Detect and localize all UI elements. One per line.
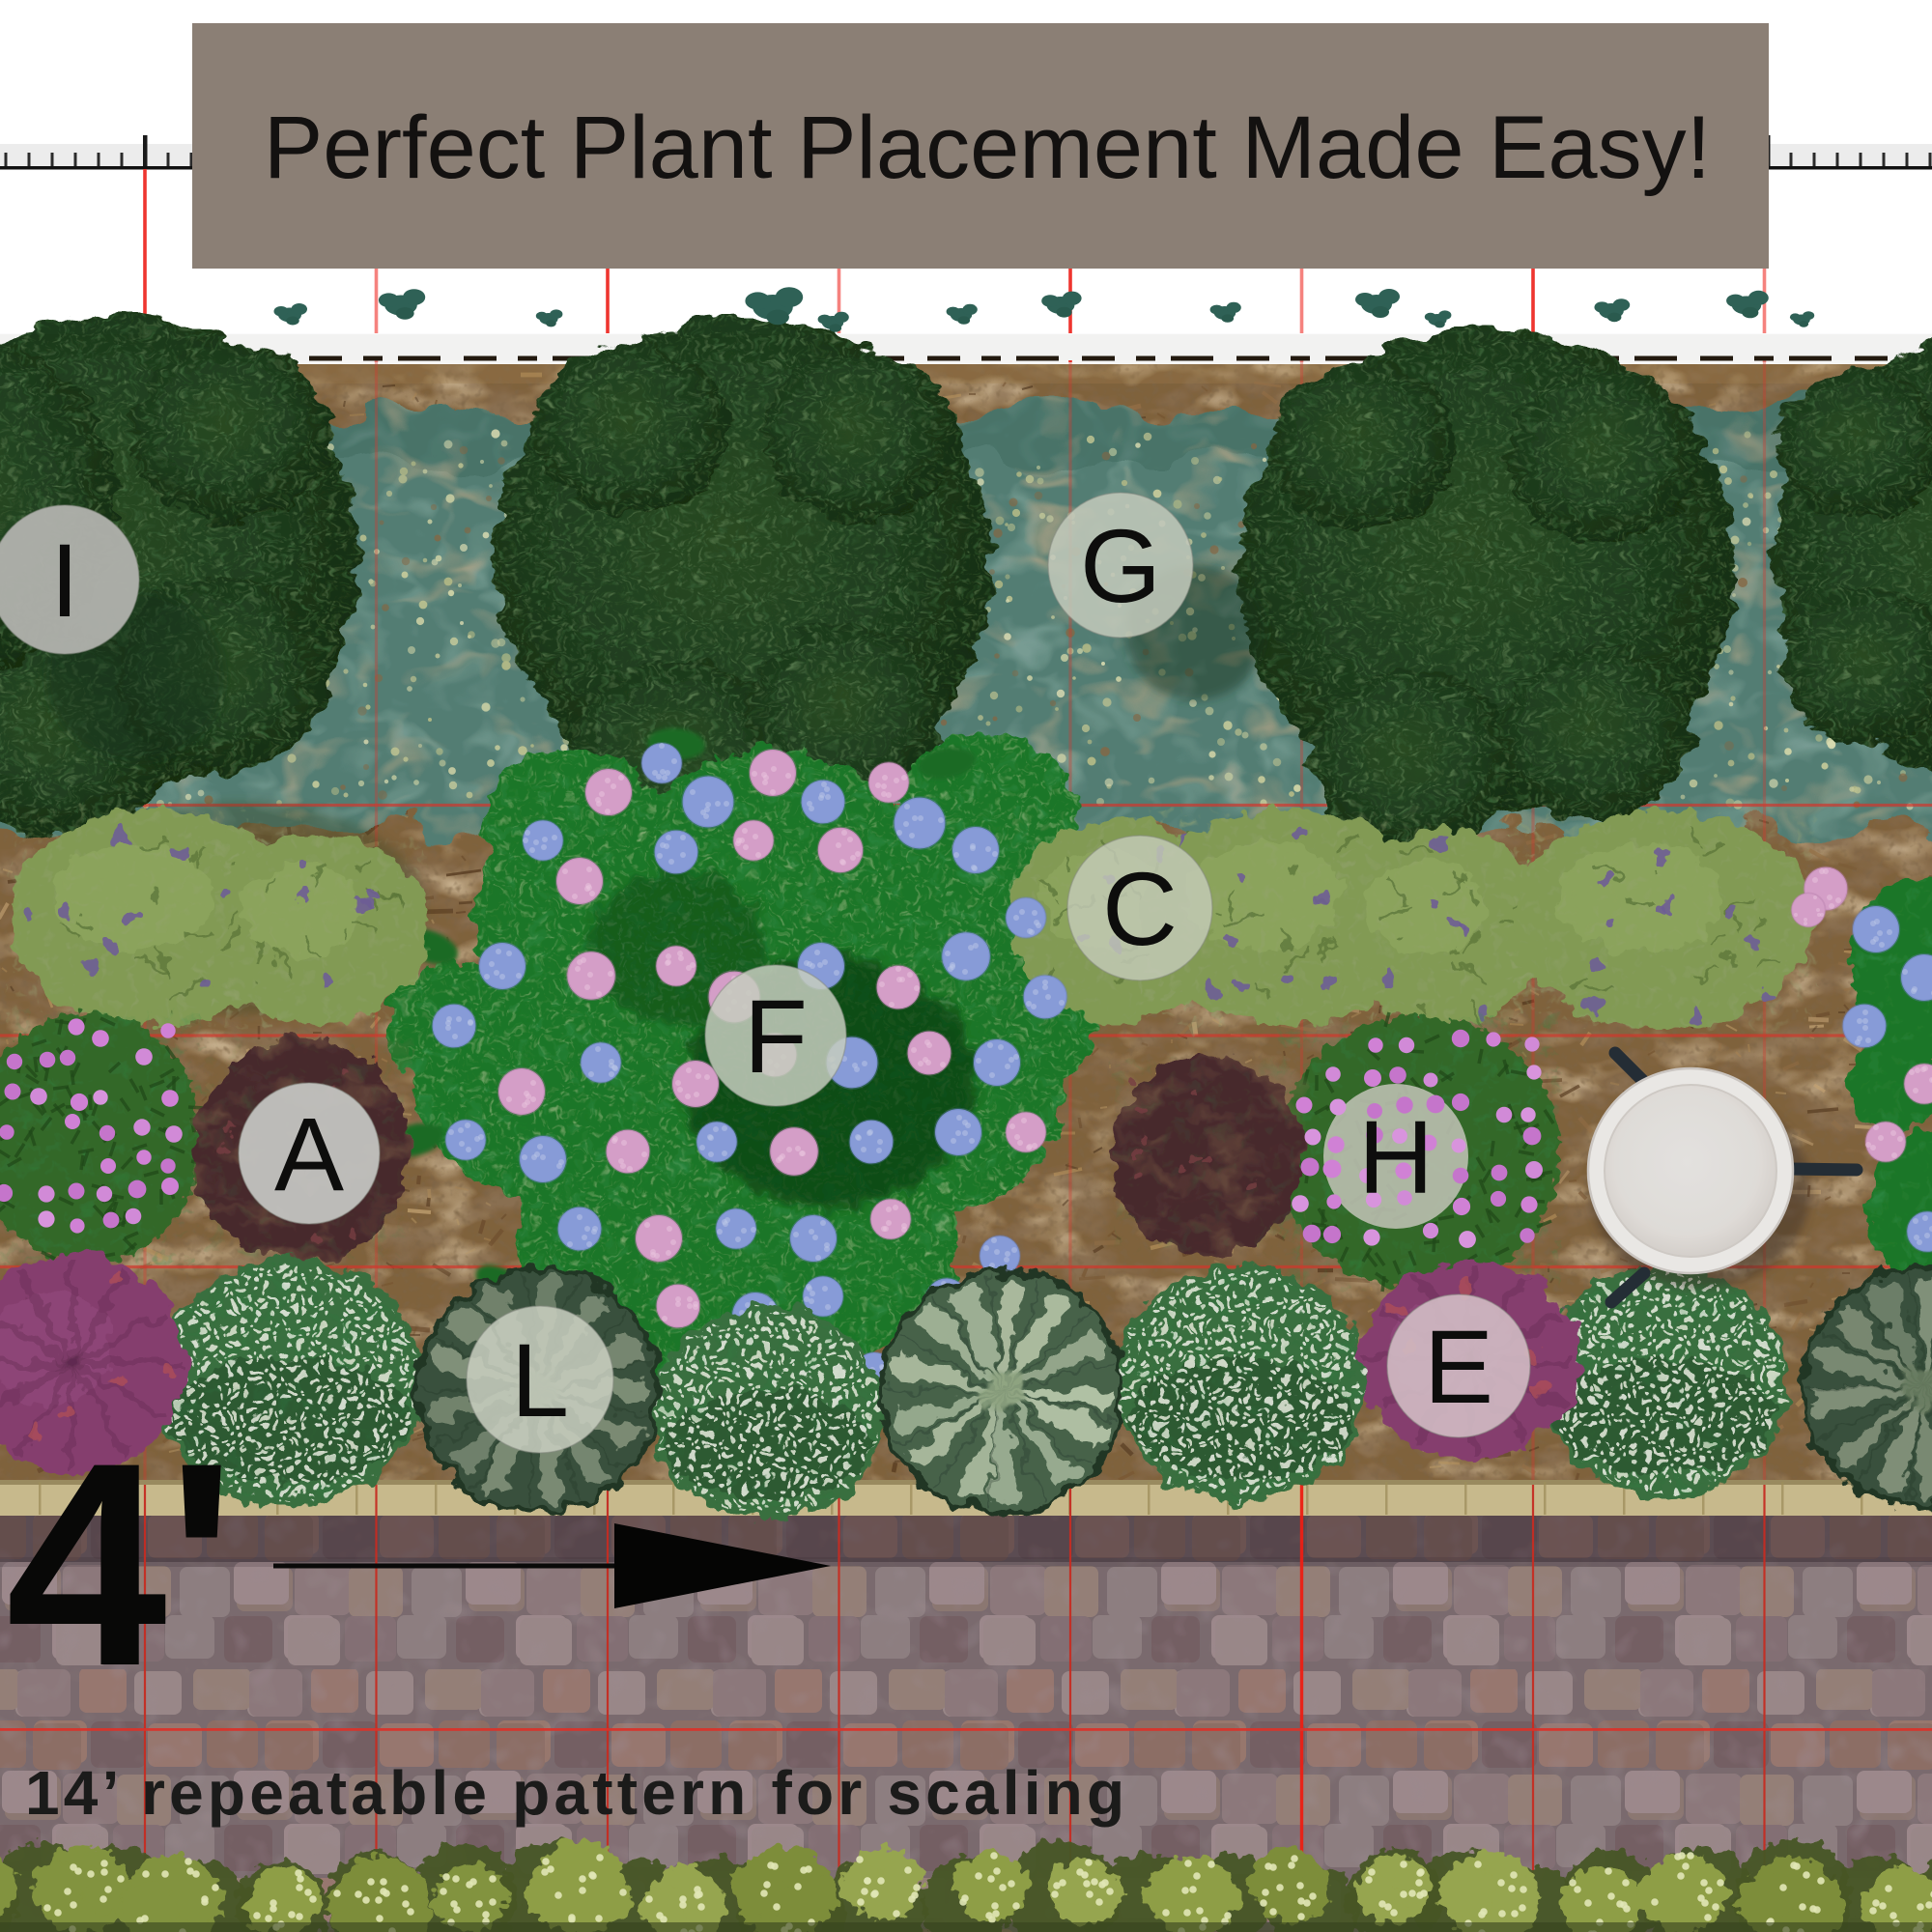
svg-text:Perfect Plant Placement Made E: Perfect Plant Placement Made Easy! [264,99,1711,197]
